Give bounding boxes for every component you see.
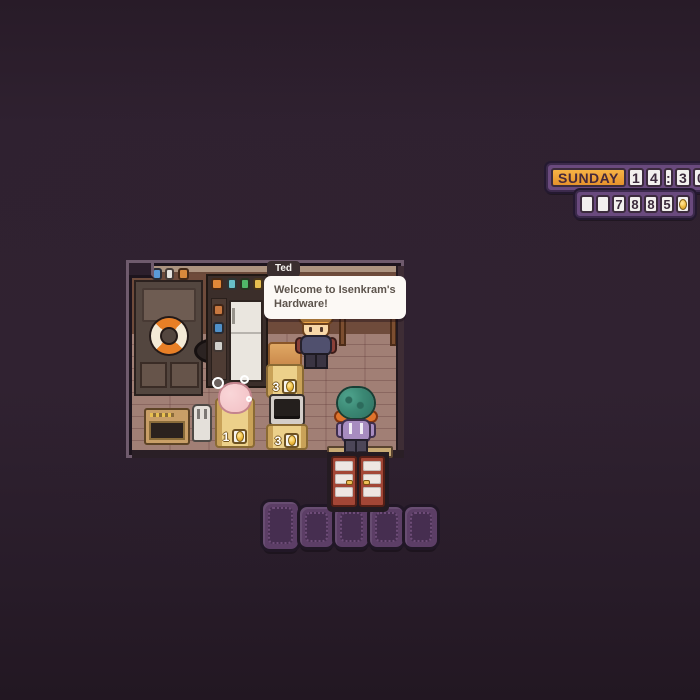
clock-panel: SUNDAY 1 4 : 3 0 [546,163,700,192]
time-digit: 1 [628,168,644,187]
shelf-item [213,304,224,316]
tile-inset [340,512,363,542]
tile-inset [410,512,432,542]
roof-corner-notch [129,263,154,278]
shelf-item [165,268,174,280]
price-value: 3 [273,380,280,394]
speaker-name-tag: Ted [267,261,300,277]
ted-eye [309,327,312,332]
shelf-item [213,322,224,334]
crate [140,362,167,388]
door-left[interactable] [331,456,357,507]
shelf-item [227,278,237,290]
money-empty-cell [580,195,594,213]
player-character[interactable] [338,388,374,458]
door-window [363,461,381,471]
coin-icon [232,429,247,444]
shop-display-plush-pig[interactable]: 1 [215,384,255,450]
path-tile [335,507,368,547]
shelf-item [178,268,189,280]
shelf-item [213,340,224,352]
door-window [335,461,353,471]
tile-inset [268,507,293,544]
price-tag: 1 [215,429,255,444]
time-colon: : [664,168,673,187]
tile-inset [305,512,328,542]
shelf-item [253,278,263,290]
money-digit: 8 [644,195,658,213]
time-digit: 0 [693,168,700,187]
fridge-handle [232,308,235,324]
soap-bubble [212,377,224,389]
door-handle [346,480,353,485]
shelf-item [240,278,250,290]
money-digit: 7 [612,195,626,213]
soap-bubble [246,396,252,402]
life-preserver-hole [162,329,176,343]
ted-leg [306,355,315,367]
price-tag: 3 [266,379,304,394]
coin-icon [676,195,690,213]
door-window [363,487,381,497]
tile-inset [375,512,398,542]
entrance-double-doors[interactable] [327,452,389,512]
monitor-screen [274,399,300,419]
price-value: 3 [275,434,282,448]
door-window [335,487,353,497]
day-label: SUNDAY [551,168,626,187]
time-digit: 4 [646,168,662,187]
path-tile [370,507,403,547]
radio-grille [149,421,185,440]
money-empty-cell [596,195,610,213]
path-tile [263,502,298,549]
player-hair [338,388,374,418]
time-digit: 3 [675,168,691,187]
speech-bubble[interactable]: Welcome to Isenkram's Hardware! [264,276,406,319]
player-strap [360,423,363,434]
shelf-item [211,278,223,290]
npc-ted[interactable] [299,310,333,370]
shop-display-monitor[interactable]: 3 [266,394,308,450]
crate [170,362,199,388]
fridge-door-split [231,332,261,334]
dialogue-line: Hardware! [274,297,396,311]
game-screen: 1 3 3 [0,0,700,700]
money-panel: 7 8 8 5 [575,190,695,218]
path-tile [300,507,333,547]
player-arm [369,424,374,436]
door-handle [363,480,370,485]
ted-leg [317,355,326,367]
price-tag: 3 [266,433,308,448]
radio-knobs [150,413,174,417]
milk-can-slots [197,409,207,419]
player-strap [349,423,352,434]
money-digit: 5 [660,195,674,213]
coin-icon [282,379,297,394]
soap-bubble [240,375,249,384]
ted-body [302,337,330,354]
path-tile [405,507,437,547]
price-value: 1 [223,430,230,444]
coin-icon [284,433,299,448]
metal-plate [142,288,196,322]
dialogue-line: Welcome to Isenkram's [274,283,396,297]
ted-eye [320,327,323,332]
money-digit: 8 [628,195,642,213]
player-body [343,421,369,441]
